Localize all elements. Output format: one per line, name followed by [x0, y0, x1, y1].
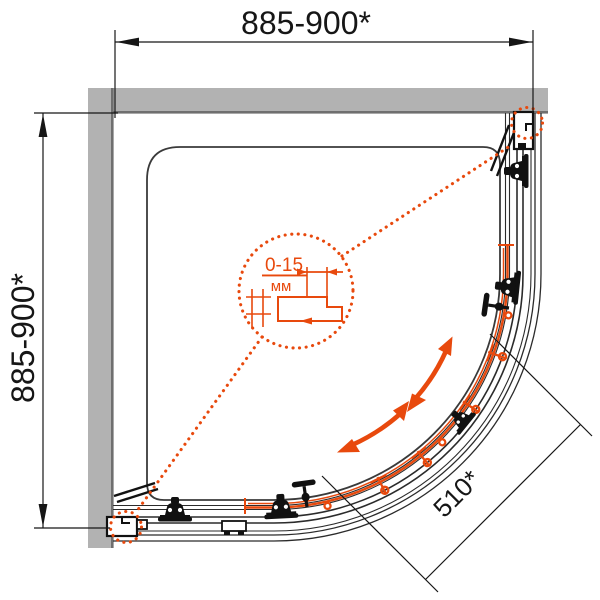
depth-dimension-label: 885-900*: [5, 273, 41, 403]
shower-tray-outline: [147, 147, 500, 500]
radius-dimension: 510*: [322, 334, 592, 592]
door-swing-arrow-lower: [337, 401, 409, 453]
door-roller-clamps: [324, 312, 512, 510]
shower-enclosure-diagram: 0-15 мм 885-900*: [0, 0, 600, 600]
detail-unit-label: мм: [271, 278, 292, 295]
floor-guide: [222, 521, 246, 535]
detail-adjustment-arrows: [297, 267, 343, 306]
door-swing-arrow-upper: [407, 337, 453, 413]
left-wall: [88, 88, 114, 548]
wall-profile-top-right: [514, 112, 533, 149]
top-wall: [88, 88, 548, 114]
technical-drawing-canvas: 0-15 мм 885-900*: [0, 0, 600, 600]
detail-leader-line: [137, 144, 513, 511]
width-dimension-label: 885-900*: [241, 5, 371, 41]
detail-callout-circle: 0-15 мм: [239, 234, 353, 348]
